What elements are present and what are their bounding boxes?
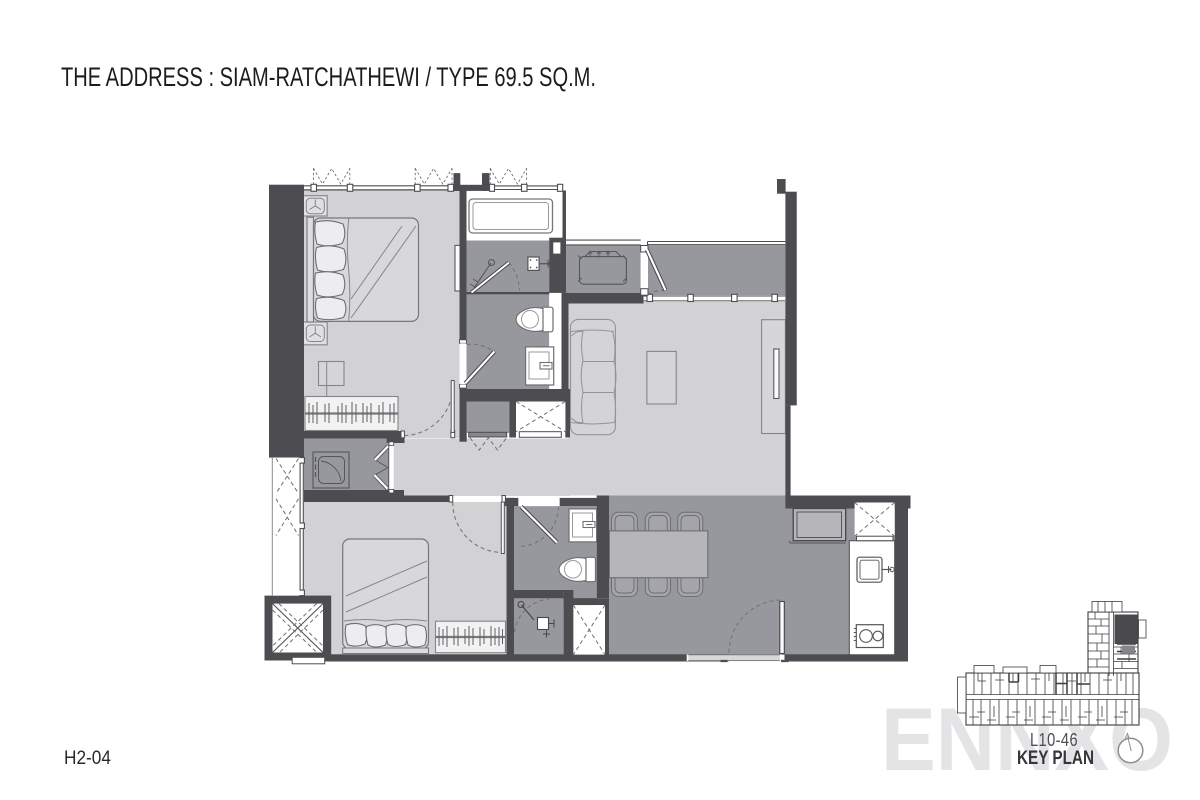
svg-text:L10-46: L10-46 <box>1030 729 1078 750</box>
svg-text:H2-04: H2-04 <box>64 747 111 769</box>
svg-text:THE ADDRESS : SIAM-RATCHATHEWI: THE ADDRESS : SIAM-RATCHATHEWI / TYPE 69… <box>61 62 596 92</box>
svg-text:KEY PLAN: KEY PLAN <box>1017 748 1094 769</box>
